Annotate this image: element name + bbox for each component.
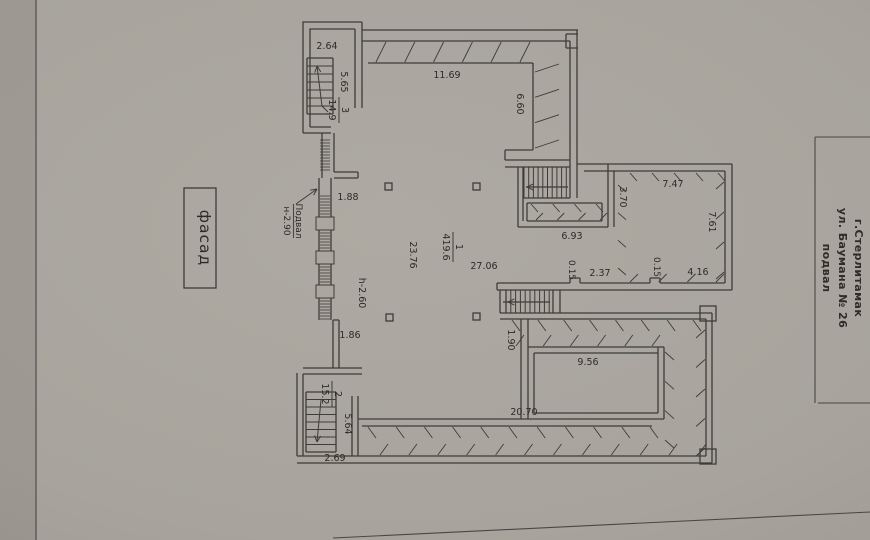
dim-hall-depth: 23.76 <box>407 241 418 268</box>
wall-tick <box>525 444 533 455</box>
arrow-line <box>317 66 322 106</box>
arrow-head <box>315 66 317 73</box>
dim-notch-a: 0.15 <box>566 260 576 280</box>
floor-plan-drawing: г.Стерлитамак ул. Баумана № 26 подвал фа… <box>0 0 870 540</box>
wall-tick <box>669 444 677 455</box>
wall-tick <box>405 42 415 62</box>
wall-tick <box>579 213 586 220</box>
wall-tick <box>622 427 630 438</box>
wall-tick <box>424 427 432 438</box>
wall-tick <box>396 427 404 438</box>
dim-hall-width: 27.06 <box>470 261 497 272</box>
wall-tick <box>641 320 649 331</box>
wall-tick <box>467 444 475 455</box>
dim-right-room-width: 7.47 <box>662 179 683 190</box>
wall-tick <box>618 240 626 247</box>
column <box>473 313 480 320</box>
title-city: г.Стерлитамак <box>852 219 865 317</box>
dim-jog-bottom: 1.86 <box>339 330 360 341</box>
dim-bottom-block-height: 5.64 <box>342 413 353 434</box>
wall-tick <box>536 213 543 220</box>
wall-tick <box>557 213 564 220</box>
dim-passage: 1.90 <box>505 329 516 350</box>
wall-tick <box>598 335 606 346</box>
sheet-bottom-border <box>333 512 870 538</box>
title-street: ул. Баумана № 26 <box>836 208 849 328</box>
dim-bottom-block-width: 2.69 <box>324 453 345 464</box>
wall-tick <box>611 444 619 455</box>
wall-tick <box>509 427 517 438</box>
wall-tick <box>618 268 626 275</box>
wall-tick <box>535 64 559 72</box>
wall-tick <box>652 173 659 181</box>
wall-tick <box>665 352 674 360</box>
wall-tick <box>696 389 705 397</box>
room-2-number: 2 <box>332 391 343 397</box>
dim-mid-stairs-width: 6.93 <box>561 231 582 242</box>
wall-tick <box>531 204 538 212</box>
wall-tick <box>543 335 551 346</box>
wall-tick <box>615 320 623 331</box>
room-2-area: 15.2 <box>319 383 330 404</box>
wall-tick <box>696 173 703 181</box>
wall-tick <box>376 42 386 62</box>
wall-tick <box>600 213 607 220</box>
dim-seg-416: 4.16 <box>687 267 708 278</box>
room-1-area: 419.6 <box>440 233 451 260</box>
dim-right-room-height: 7.61 <box>706 211 717 232</box>
wall-tick <box>652 335 660 346</box>
dim-ceiling-height: h-2.60 <box>356 278 367 309</box>
arrow-line <box>296 189 317 204</box>
wall-tick <box>564 320 572 331</box>
wall-tick <box>535 89 559 97</box>
dimension-labels: 2.64 5.65 11.69 6.60 1.88 23.76 27.06 6.… <box>316 41 717 464</box>
wall-tick <box>434 42 444 62</box>
wall-tick <box>650 427 658 438</box>
basement-callout: Подвал н-2.90 <box>281 203 303 238</box>
wall-tick <box>640 444 648 455</box>
columns <box>385 183 480 321</box>
wall-tick <box>716 242 724 249</box>
wall-tick <box>553 444 561 455</box>
wall-hatching <box>296 42 725 456</box>
scanned-floor-plan-sheet: г.Стерлитамак ул. Баумана № 26 подвал фа… <box>0 0 870 540</box>
wall-tick <box>553 204 560 212</box>
arrow-line <box>317 400 321 442</box>
wall-tick <box>625 335 633 346</box>
wall-tick <box>716 182 724 189</box>
wall-tick <box>594 427 602 438</box>
wall-tick <box>538 320 546 331</box>
wall-tick <box>630 274 638 282</box>
dim-right-room-left-seg: 3.70 <box>617 186 628 207</box>
window-block <box>316 251 334 264</box>
wall-tick <box>535 115 559 123</box>
wall-tick <box>696 330 705 338</box>
wall-tick <box>537 427 545 438</box>
wall-tick <box>665 411 674 419</box>
room-label-1: 1 419.6 <box>440 232 464 262</box>
callout-height: н-2.90 <box>281 206 291 235</box>
title-block: г.Стерлитамак ул. Баумана № 26 подвал <box>815 137 870 403</box>
wall-tick <box>496 444 504 455</box>
wall-tick <box>630 173 637 181</box>
building-walls <box>297 22 732 463</box>
dim-seg-237: 2.37 <box>589 268 610 279</box>
room-label-2: 2 15.2 <box>319 381 343 407</box>
dim-inner-room-width: 9.56 <box>577 357 598 368</box>
wall-tick <box>582 444 590 455</box>
wall-tick <box>409 444 417 455</box>
wall-tick <box>368 427 376 438</box>
wall-tick <box>565 427 573 438</box>
wall-tick <box>667 320 675 331</box>
title-level: подвал <box>820 244 833 293</box>
wall-tick <box>718 173 725 181</box>
wall-tick <box>516 335 524 346</box>
wall-tick <box>535 140 559 148</box>
wall-tick <box>453 427 461 438</box>
dim-top-block-width: 2.64 <box>316 41 337 52</box>
column <box>473 183 480 190</box>
wall-tick <box>696 419 705 427</box>
room-3-number: 3 <box>339 107 350 113</box>
facade-label-box: фасад <box>184 188 216 288</box>
dim-jog-top: 1.88 <box>337 192 358 203</box>
window-block <box>316 285 334 298</box>
wall-tick <box>574 204 581 212</box>
window-block <box>316 217 334 230</box>
room-label-3: 3 14.9 <box>326 97 350 123</box>
column <box>385 183 392 190</box>
column <box>386 314 393 321</box>
room-1-number: 1 <box>453 244 464 250</box>
room-3-area: 14.9 <box>326 99 337 120</box>
arrow-head <box>315 435 317 442</box>
wall-tick <box>696 360 705 368</box>
dim-top-block-height: 5.65 <box>338 71 349 92</box>
dim-right-section-depth: 6.60 <box>514 93 525 114</box>
facade-label: фасад <box>196 210 214 267</box>
wall-tick <box>438 444 446 455</box>
wall-tick <box>570 335 578 346</box>
dim-hall-top-width: 11.69 <box>433 70 460 81</box>
wall-tick <box>665 440 674 448</box>
wall-tick <box>481 427 489 438</box>
wall-tick <box>590 320 598 331</box>
dim-hall-bottom-width: 20.70 <box>510 407 537 418</box>
wall-tick <box>520 42 530 62</box>
wall-tick <box>491 42 501 62</box>
wall-tick <box>618 213 626 220</box>
wall-tick <box>380 444 388 455</box>
wall-tick <box>462 42 472 62</box>
wall-tick <box>665 381 674 389</box>
callout-name: Подвал <box>293 203 303 238</box>
dim-notch-b: 0.15 <box>651 257 661 277</box>
